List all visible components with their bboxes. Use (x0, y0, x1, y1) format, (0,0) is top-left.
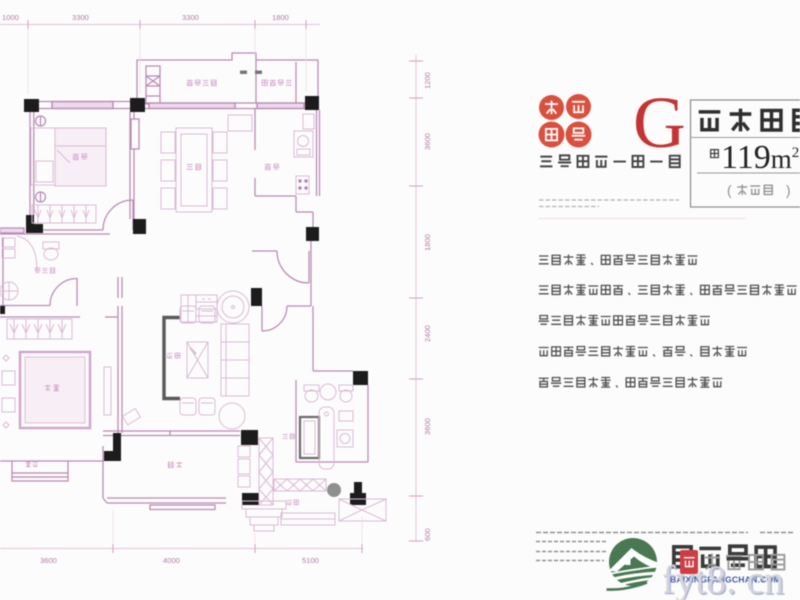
svg-text:5100: 5100 (302, 556, 319, 565)
svg-text:4000: 4000 (163, 556, 180, 565)
svg-text:(: ( (727, 183, 732, 198)
svg-text:3300: 3300 (182, 13, 199, 22)
svg-text:3600: 3600 (423, 418, 432, 435)
svg-text:): ) (786, 183, 791, 198)
svg-text:1000: 1000 (2, 13, 19, 22)
svg-text:2400: 2400 (423, 325, 432, 342)
svg-text:fyt8. cn: fyt8. cn (662, 557, 784, 600)
svg-text:1800: 1800 (423, 234, 432, 251)
svg-text:3600: 3600 (40, 556, 57, 565)
svg-text:119m2: 119m2 (721, 139, 799, 176)
svg-text:3600: 3600 (423, 133, 432, 150)
svg-text:600: 600 (423, 528, 432, 541)
svg-text:3300: 3300 (72, 13, 89, 22)
svg-text:1200: 1200 (423, 72, 432, 89)
svg-text:1800: 1800 (272, 13, 289, 22)
svg-text:G: G (633, 82, 686, 163)
